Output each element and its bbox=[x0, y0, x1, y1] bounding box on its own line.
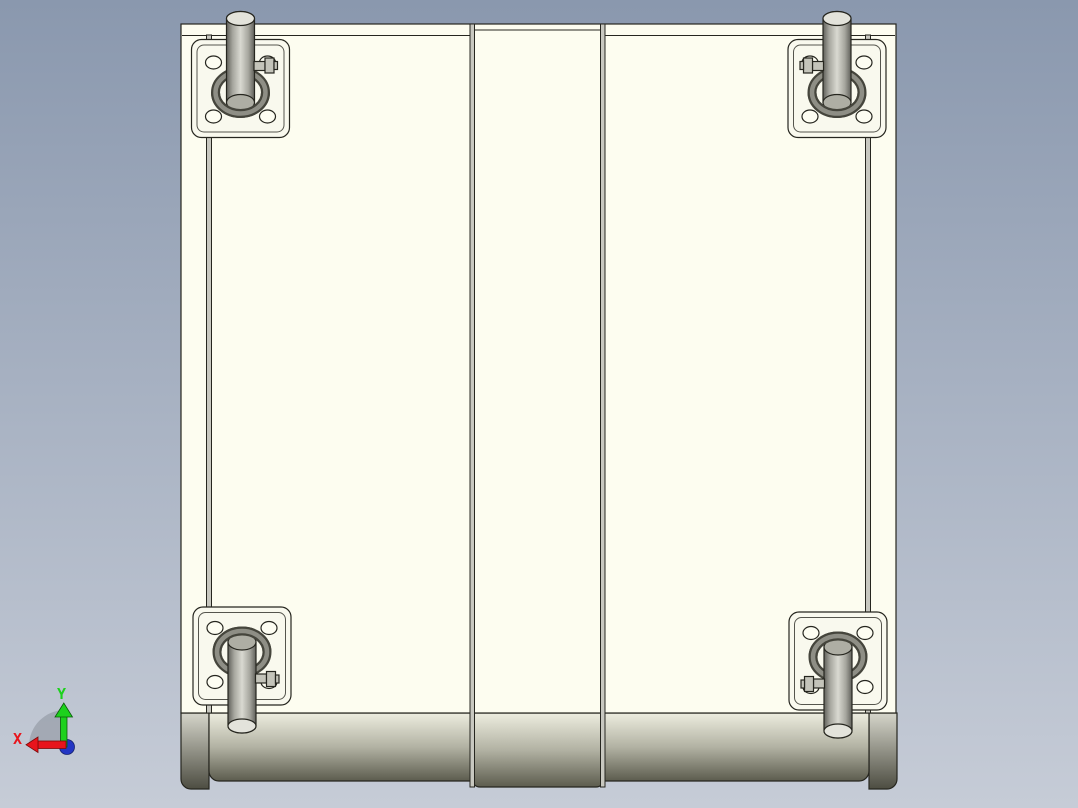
x-axis-shaft bbox=[38, 741, 66, 749]
center-column-left-edge bbox=[470, 24, 475, 787]
right-side-wall-strip[interactable] bbox=[869, 713, 897, 789]
cad-viewport[interactable]: X Y bbox=[0, 0, 1078, 808]
center-column-right-edge bbox=[601, 24, 606, 787]
y-axis-label: Y bbox=[57, 685, 66, 703]
left-side-wall-strip[interactable] bbox=[181, 713, 209, 789]
x-axis-label: X bbox=[13, 730, 22, 748]
center-column-band[interactable] bbox=[472, 713, 604, 787]
cart-bottom-view-model[interactable] bbox=[181, 12, 897, 790]
